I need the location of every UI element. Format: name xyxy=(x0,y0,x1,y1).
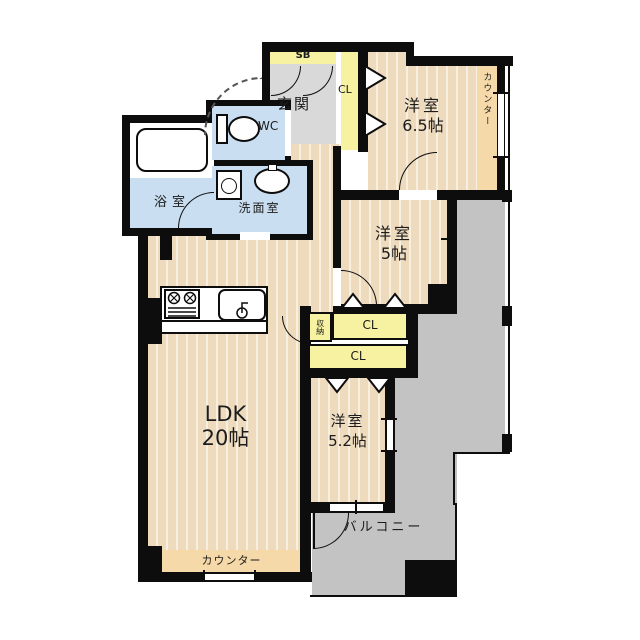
outdoor-strip-1 xyxy=(457,200,505,452)
wall xyxy=(408,312,418,372)
balcony-corner-block xyxy=(405,560,457,597)
stove-icon xyxy=(164,289,200,319)
washroom-label: 洗面室 xyxy=(212,200,307,218)
washroom-door-gap xyxy=(240,232,270,240)
bedroom1-counter-label: カウンター xyxy=(481,72,491,127)
washing-machine-drum-icon xyxy=(221,178,237,194)
exterior-mask xyxy=(414,40,497,56)
entry-door-arc xyxy=(204,77,262,135)
basin-icon xyxy=(254,168,290,194)
window-tick xyxy=(493,92,509,94)
bedroom1-door-gap xyxy=(399,190,437,200)
bedroom3-size-label: 5.2帖 xyxy=(310,432,385,452)
bedroom2-name-label: 洋室 xyxy=(341,224,447,244)
closet-door-triangle-icon xyxy=(366,376,392,394)
balcony-boundary-line xyxy=(455,503,457,597)
storage-label: 収納 xyxy=(311,314,329,340)
hall-closet-floor xyxy=(341,50,358,150)
wall xyxy=(140,298,162,344)
wall xyxy=(406,42,414,66)
boundary-chunk xyxy=(502,306,512,326)
outdoor-boundary-line xyxy=(455,452,510,454)
hall-closet-label: CL xyxy=(338,84,352,97)
closet-upper-label: CL xyxy=(332,314,408,338)
wc-door-gap xyxy=(285,110,291,156)
ldk-size-label: 20帖 xyxy=(148,426,303,450)
bedroom1-window-gap xyxy=(498,94,504,158)
floor-plan: SB 玄関 CL 洋室 6.5帖 カウンター 浴室 WC 洗面室 洋室 5帖 収… xyxy=(0,0,640,640)
bedroom1-name-label: 洋室 xyxy=(368,96,478,116)
closet-door-triangle-icon xyxy=(340,292,366,310)
bedroom2-size-label: 5帖 xyxy=(341,244,447,264)
bath-label: 浴室 xyxy=(130,194,214,212)
kitchen-sink-icon xyxy=(218,289,266,321)
window-tick xyxy=(254,570,256,582)
ldk-window-gap xyxy=(205,574,255,580)
window-tick xyxy=(493,156,509,158)
kitchen-counter-front-icon xyxy=(160,320,268,334)
wall xyxy=(300,370,418,378)
outdoor-boundary-line xyxy=(453,452,455,505)
bathtub-icon xyxy=(136,128,208,172)
wall xyxy=(447,200,457,290)
closet-door-triangle-icon xyxy=(324,376,350,394)
wall xyxy=(160,236,172,260)
basin-tap-icon xyxy=(268,164,277,171)
ldk-name-label: LDK xyxy=(148,402,303,426)
boundary-chunk xyxy=(502,190,512,202)
wc-label: WC xyxy=(258,120,278,134)
balcony-boundary-line xyxy=(310,595,457,597)
ldk-counter-label: カウンター xyxy=(160,552,303,570)
outdoor-boundary-line xyxy=(508,66,510,454)
bedroom3-name-label: 洋室 xyxy=(310,412,385,432)
boundary-chunk xyxy=(502,434,512,452)
balcony-label: バルコニー xyxy=(312,518,455,538)
shoebox-label: SB xyxy=(270,48,336,63)
bedroom3-window-gap xyxy=(387,420,393,452)
wall xyxy=(140,546,162,582)
window-tick xyxy=(355,500,357,514)
entrance-label: 玄関 xyxy=(277,96,311,113)
window-tick xyxy=(203,570,205,582)
closet-door-triangle-icon xyxy=(382,292,408,310)
outdoor-strip-3 xyxy=(395,378,457,505)
wall xyxy=(138,228,148,582)
bedroom1-size-label: 6.5帖 xyxy=(368,116,478,136)
closet-lower-label: CL xyxy=(308,346,408,368)
closet-door-triangle-icon xyxy=(363,64,387,92)
